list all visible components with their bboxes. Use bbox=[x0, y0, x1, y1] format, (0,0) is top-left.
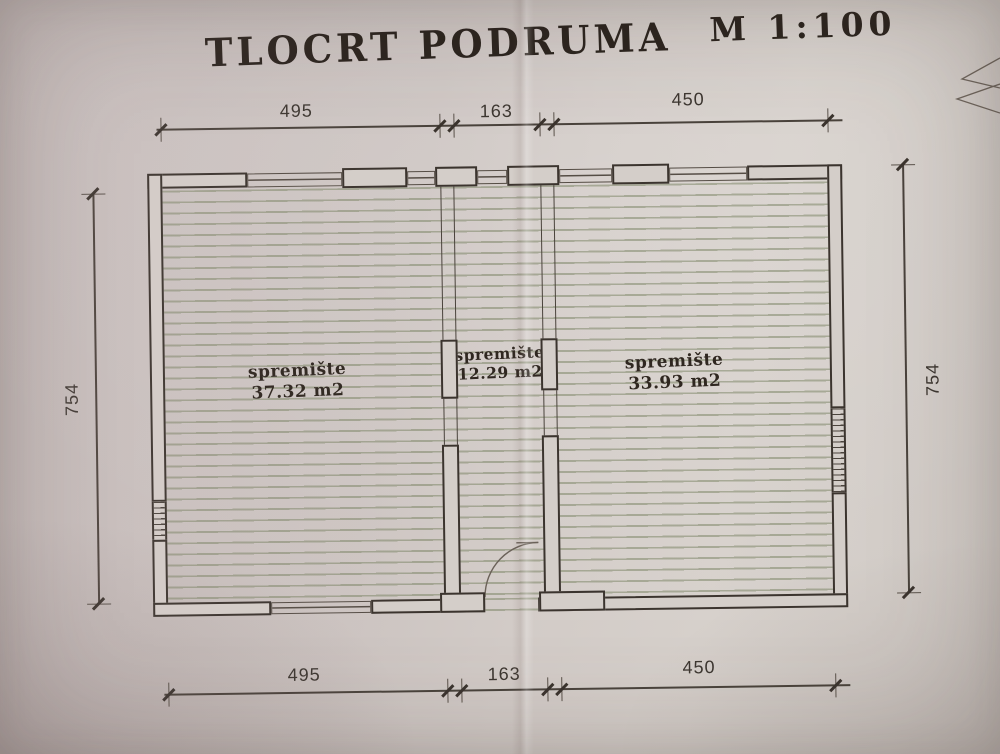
interior-wall-pier bbox=[442, 445, 461, 599]
interior-wall-opening bbox=[443, 398, 458, 446]
interior-wall-opening bbox=[540, 183, 556, 339]
dimension-line-left bbox=[92, 194, 99, 604]
interior-wall-footing bbox=[539, 591, 605, 612]
window bbox=[247, 172, 342, 187]
dimension-line-right bbox=[902, 164, 909, 592]
right-wall-segment bbox=[832, 492, 849, 607]
top-wall-pier bbox=[435, 166, 477, 187]
interior-wall-pier bbox=[540, 338, 558, 390]
interior-wall-footing bbox=[440, 592, 485, 613]
window bbox=[669, 167, 747, 182]
interior-wall-opening bbox=[440, 185, 456, 341]
interior-wall-pier bbox=[542, 435, 561, 597]
dim-value-bottom-right: 450 bbox=[659, 657, 739, 679]
room-area: 12.29 m2 bbox=[450, 361, 551, 384]
dim-value-bottom-middle: 163 bbox=[466, 663, 542, 685]
dim-value-top-left: 495 bbox=[256, 100, 336, 122]
window bbox=[477, 170, 507, 184]
plan-scene: spremište 37.32 m2 spremište 12.29 m2 sp… bbox=[0, 0, 1000, 754]
window bbox=[407, 171, 435, 185]
interior-wall-opening bbox=[543, 389, 558, 436]
window bbox=[830, 408, 846, 492]
dim-value-right: 754 bbox=[922, 349, 944, 409]
bottom-wall-segment bbox=[153, 601, 271, 617]
window bbox=[271, 601, 371, 614]
top-wall-pier bbox=[507, 165, 559, 186]
top-wall-pier bbox=[612, 164, 669, 185]
room-label-middle: spremište 12.29 m2 bbox=[449, 342, 550, 384]
dim-value-left: 754 bbox=[61, 369, 83, 429]
dim-value-top-right: 450 bbox=[648, 89, 728, 111]
title-scale: M 1:100 bbox=[709, 4, 897, 50]
top-wall-pier bbox=[342, 167, 407, 188]
room-label-right: spremište 33.93 m2 bbox=[591, 348, 758, 397]
window bbox=[559, 168, 612, 183]
window bbox=[152, 502, 168, 540]
room-label-left: spremište 37.32 m2 bbox=[214, 358, 381, 407]
dim-value-bottom-left: 495 bbox=[264, 664, 344, 686]
interior-wall-pier bbox=[440, 340, 458, 399]
floor-plan-photo: TLOCRT PODRUMA M 1:100 bbox=[0, 0, 1000, 754]
right-wall-segment bbox=[827, 164, 845, 408]
dim-value-top-middle: 163 bbox=[458, 100, 534, 122]
paper-corner-zigzag bbox=[938, 50, 1000, 122]
